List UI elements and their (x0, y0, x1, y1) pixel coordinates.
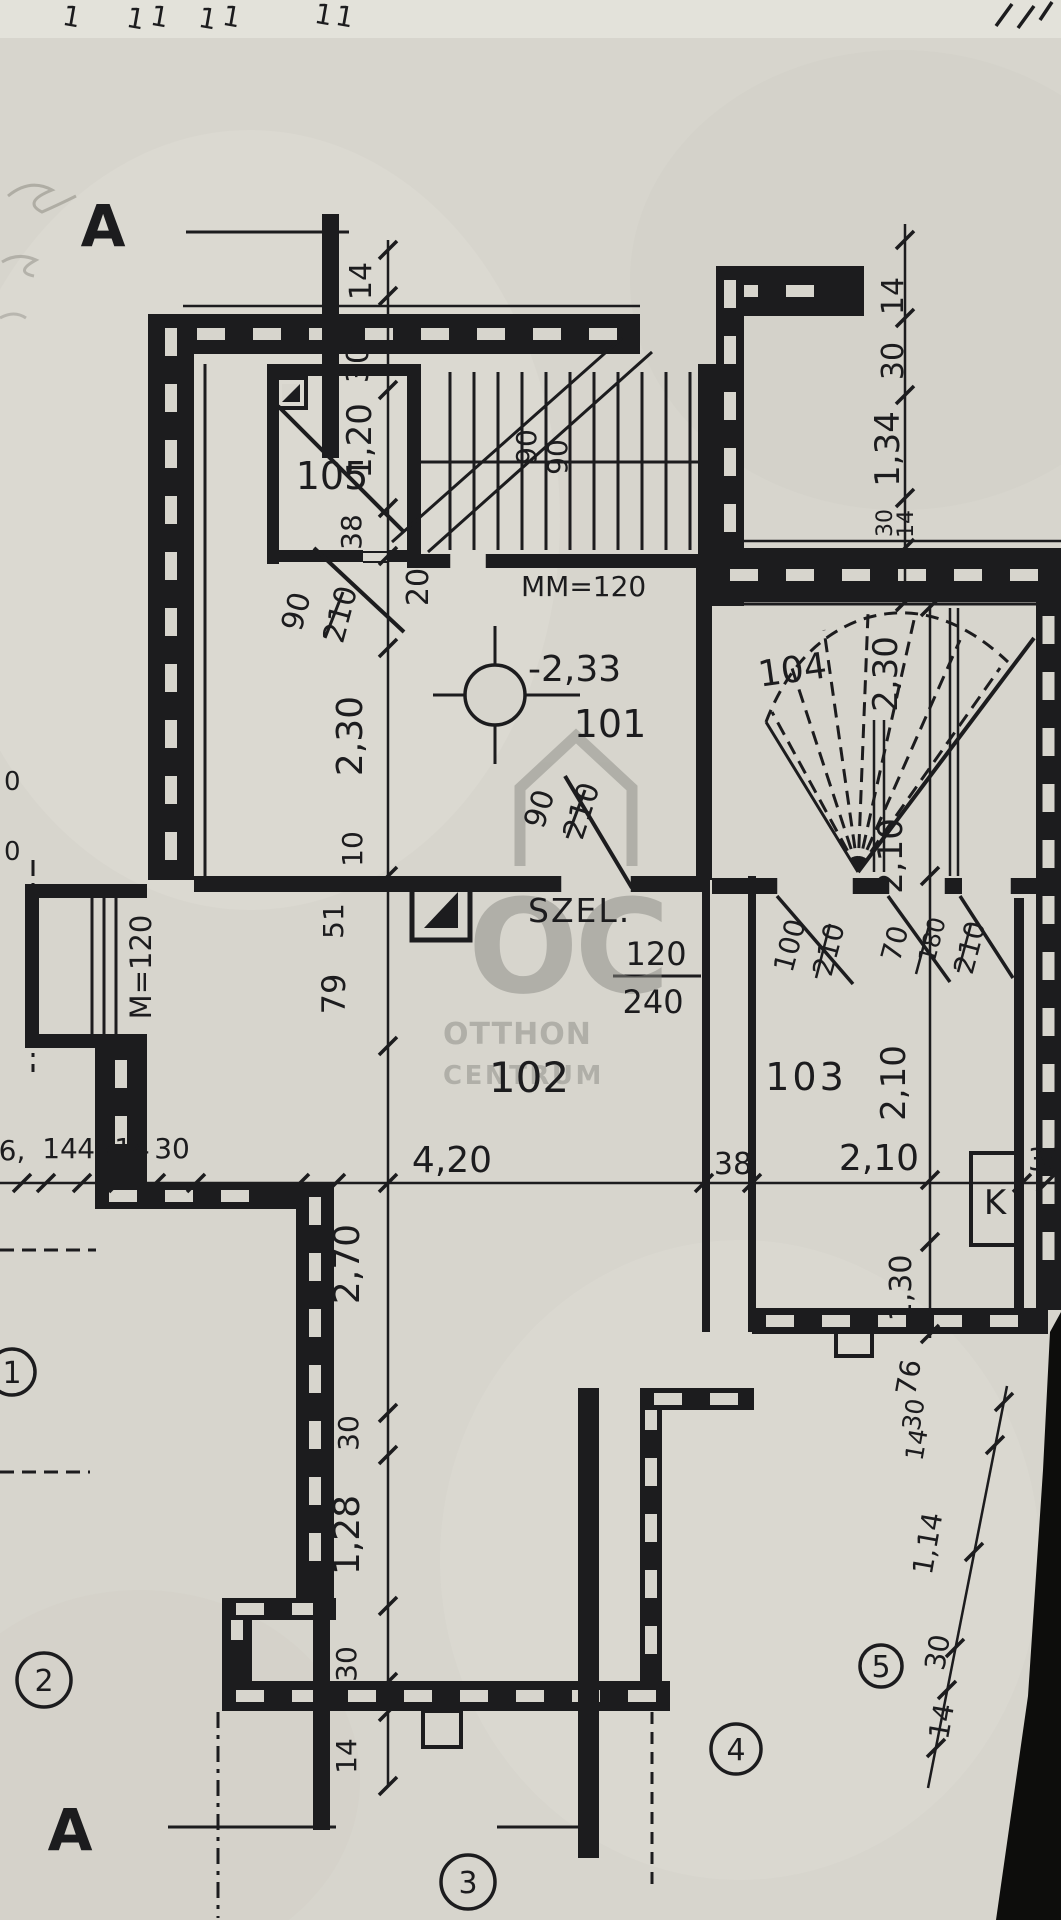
dim-label: 38 (335, 514, 368, 550)
wall-hatch (165, 328, 177, 356)
dim-label: 79 (315, 974, 353, 1015)
dim-label: 2,10 (874, 1045, 914, 1121)
dim-label: 14 (922, 1701, 961, 1742)
axis-number: 1 (2, 1356, 21, 1391)
level-annotation: -2,33 (528, 649, 621, 690)
wall-hatch (898, 569, 926, 581)
wall-hatch (460, 1690, 488, 1702)
wall-segment (487, 554, 712, 568)
wall-hatch (309, 1309, 321, 1337)
dim-label: 30 (330, 1646, 363, 1682)
wall-hatch (309, 1421, 321, 1449)
dim-label: 4,20 (412, 1140, 492, 1181)
wall-hatch (645, 1626, 657, 1654)
window-height-label: M=120 (124, 915, 158, 1020)
wall-hatch (589, 328, 617, 340)
section-letter-bottom: A (48, 1796, 93, 1864)
wall-hatch (421, 328, 449, 340)
wall-hatch (730, 569, 758, 581)
cut-dim-label: 0 (4, 837, 21, 867)
axis-number: 3 (458, 1866, 477, 1901)
sill-height-label: MM=120 (521, 570, 646, 603)
wall-hatch (1043, 1232, 1055, 1260)
wall-hatch (1043, 672, 1055, 700)
wall-hatch (516, 1690, 544, 1702)
wall-hatch (1043, 896, 1055, 924)
dim-label: 51 (317, 903, 350, 939)
wall-hatch (165, 720, 177, 748)
wall-hatch (236, 1603, 264, 1615)
dim-label: 1,34 (868, 411, 908, 487)
wall-hatch (165, 384, 177, 412)
wall-hatch (628, 1690, 656, 1702)
dim-label: 38 (1028, 1143, 1061, 1178)
dim-label: 38 (714, 1147, 752, 1182)
wall-hatch (309, 1365, 321, 1393)
wall-segment (696, 560, 712, 880)
wall-hatch (165, 832, 177, 860)
dim-label: 76 (889, 1357, 928, 1398)
dim-label: 2,30 (866, 636, 906, 712)
dim-label: 2,30 (330, 696, 371, 776)
wall-hatch (822, 1315, 850, 1327)
wall-segment (267, 550, 363, 562)
dim-label: 2,10 (871, 818, 911, 894)
wall-hatch (786, 569, 814, 581)
wall-hatch (710, 1393, 738, 1405)
wall-hatch (109, 1190, 137, 1202)
wall-segment (946, 878, 962, 894)
wall-segment (407, 364, 421, 562)
wall-hatch (115, 1060, 127, 1088)
dim-label: 90 (541, 439, 574, 475)
wall-segment (407, 554, 449, 568)
wall-hatch (1043, 616, 1055, 644)
section-letter-top: A (81, 192, 126, 260)
dim-label: 1,28 (327, 1495, 368, 1575)
wall-hatch (309, 1197, 321, 1225)
wall-segment (702, 876, 710, 1332)
wall-hatch (786, 285, 814, 297)
wall-hatch (1043, 728, 1055, 756)
wall-hatch (645, 1514, 657, 1542)
wall-hatch (165, 440, 177, 468)
wall (183, 314, 640, 354)
dim-label: 2,10 (839, 1138, 919, 1179)
wall-hatch (954, 569, 982, 581)
wall-hatch (1043, 1008, 1055, 1036)
wall-hatch (165, 552, 177, 580)
wall-hatch (1043, 1064, 1055, 1092)
dim-label: 10 (336, 831, 369, 867)
dim-label: 30 (918, 1632, 957, 1673)
wall-hatch (165, 776, 177, 804)
room-label-102: 102 (489, 1053, 569, 1102)
room-label-105: 105 (296, 454, 369, 498)
chimney-label: K (984, 1183, 1008, 1223)
wall-hatch (1043, 952, 1055, 980)
wall (222, 1681, 670, 1711)
wall-hatch (724, 392, 736, 420)
wall-hatch (309, 1253, 321, 1281)
wall-hatch (990, 1315, 1018, 1327)
floor-plan: OC OTTHON CENTRUM AA14301,20382010590210… (0, 0, 1061, 1920)
floor-plan-scan: OC OTTHON CENTRUM AA14301,20382010590210… (0, 0, 1061, 1920)
dim-label: 30 (876, 342, 911, 380)
wall-hatch (404, 1690, 432, 1702)
wall-hatch (253, 328, 281, 340)
axis-number: 2 (34, 1664, 53, 1699)
wall-segment (748, 876, 756, 1332)
wall-hatch (842, 569, 870, 581)
wall-hatch (654, 1393, 682, 1405)
wall-segment (712, 878, 776, 894)
wall-hatch (197, 328, 225, 340)
vent-label: SZEL. (528, 891, 631, 930)
wall-hatch (1043, 840, 1055, 868)
wall-hatch (533, 328, 561, 340)
section-cut-bar (578, 1388, 599, 1858)
wall-segment (25, 1034, 147, 1048)
axis-number: 5 (871, 1650, 890, 1685)
wall-hatch (236, 1690, 264, 1702)
wall-hatch (165, 496, 177, 524)
wall-segment (1012, 878, 1038, 894)
wall-hatch (221, 1190, 249, 1202)
dim-label: 14 (42, 1132, 78, 1165)
wall-hatch (165, 608, 177, 636)
section-cut-bar (313, 1584, 330, 1830)
watermark-line1: OTTHON (443, 1017, 592, 1052)
axis-number: 4 (726, 1733, 745, 1768)
wall-hatch (766, 1315, 794, 1327)
wall (716, 548, 1061, 602)
wall-hatch (1010, 569, 1038, 581)
cut-dim-label: 0 (4, 767, 21, 797)
dim-label: 20 (401, 568, 436, 606)
wall-segment (1014, 898, 1024, 1310)
wall-hatch (348, 1690, 376, 1702)
dim-label: 6, (0, 1134, 25, 1167)
dim-label: 14 (344, 262, 379, 300)
wall-hatch (724, 448, 736, 476)
dim-label: 2,70 (327, 1224, 368, 1304)
wall-hatch (309, 1533, 321, 1561)
door-size-fraction-top: 120 (625, 935, 686, 973)
dim-label: 30 (341, 345, 376, 383)
dim-label: 30 (897, 1396, 931, 1432)
wall-hatch (724, 504, 736, 532)
dim-label: 1,30 (884, 1255, 919, 1322)
level-marker (465, 665, 525, 725)
dim-label: 30 (332, 1415, 365, 1451)
room-label-103: 103 (765, 1055, 847, 1099)
wall-hatch (645, 1570, 657, 1598)
texture-blotch (440, 1240, 1040, 1880)
dim-label: 14 (900, 1426, 934, 1462)
dim-label: 45 (77, 1132, 113, 1165)
dim-label: 30 (154, 1132, 190, 1165)
dim-label: 14 (114, 1132, 150, 1165)
wall-hatch (477, 328, 505, 340)
door-size-fraction-bottom: 240 (622, 983, 683, 1021)
wall-hatch (645, 1458, 657, 1486)
dim-label: 14 (330, 1738, 363, 1774)
wall-hatch (1043, 784, 1055, 812)
section-cut-bar (322, 214, 339, 458)
wall-hatch (165, 664, 177, 692)
dim-label: 14 (894, 510, 919, 538)
dim-label: 90 (510, 429, 543, 465)
wall-hatch (724, 280, 736, 308)
wall-hatch (309, 1477, 321, 1505)
wall-hatch (724, 336, 736, 364)
wall-segment (25, 884, 147, 898)
room-label-101: 101 (574, 702, 647, 746)
dim-label: 14 (876, 277, 911, 315)
